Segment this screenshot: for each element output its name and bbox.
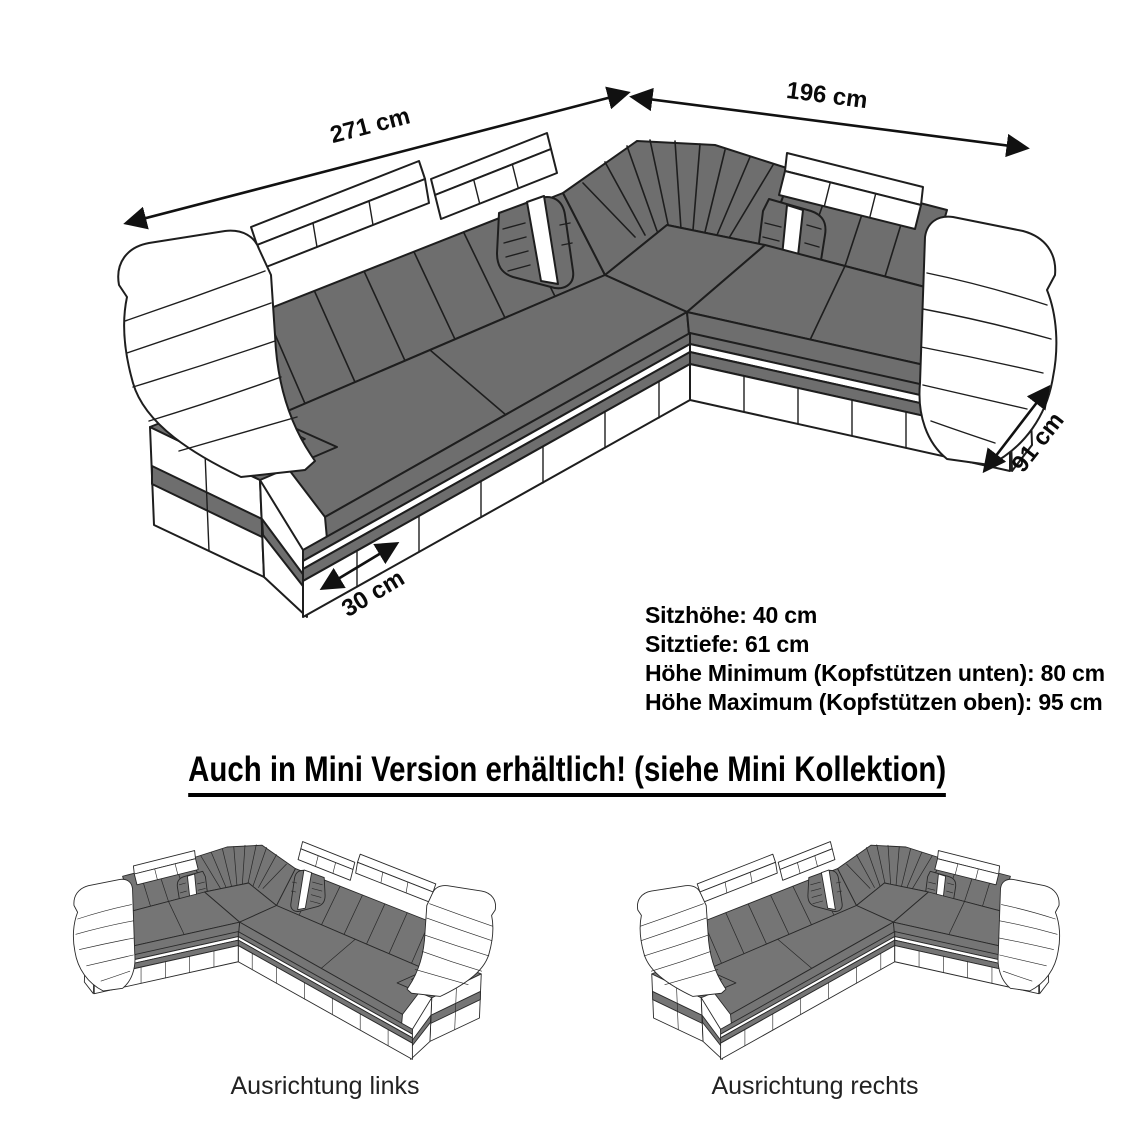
variant-label-right: Ausrichtung rechts: [605, 1072, 1025, 1101]
sofa-diagram-canvas: 271 cm 196 cm 91 cm 30 cm: [0, 0, 1134, 1134]
dimension-label-271: 271 cm: [327, 102, 413, 149]
dimension-label-196: 196 cm: [785, 77, 869, 114]
main-sofa-illustration: [118, 133, 1056, 617]
spec-height-min: Höhe Minimum (Kopfstützen unten): 80 cm: [645, 659, 1105, 688]
spec-height-max: Höhe Maximum (Kopfstützen oben): 95 cm: [645, 688, 1105, 717]
variant-label-left: Ausrichtung links: [115, 1072, 535, 1101]
mini-sofa-right-orientation: [637, 842, 1059, 1060]
spec-seat-depth: Sitztiefe: 61 cm: [645, 630, 1105, 659]
mini-version-headline: Auch in Mini Version erhältlich! (siehe …: [0, 750, 1134, 797]
spec-seat-height: Sitzhöhe: 40 cm: [645, 601, 1105, 630]
mini-sofa-left-orientation: [73, 842, 495, 1060]
product-dimension-page: 271 cm 196 cm 91 cm 30 cm Sitzhöhe: 40 c…: [0, 0, 1134, 1134]
spec-text-block: Sitzhöhe: 40 cm Sitztiefe: 61 cm Höhe Mi…: [645, 601, 1105, 717]
mini-version-headline-text: Auch in Mini Version erhältlich! (siehe …: [188, 750, 946, 797]
